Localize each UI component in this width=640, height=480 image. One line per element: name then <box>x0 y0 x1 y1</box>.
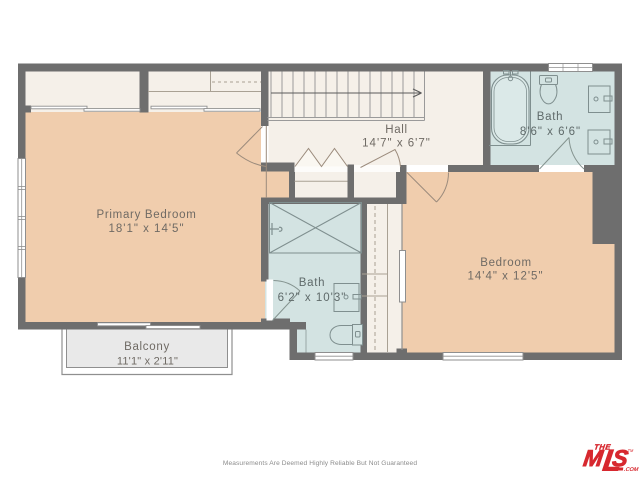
svg-text:Balcony: Balcony <box>124 341 170 353</box>
svg-text:8'6" x 6'6": 8'6" x 6'6" <box>520 126 581 138</box>
svg-text:18'1" x 14'5": 18'1" x 14'5" <box>108 223 184 235</box>
svg-text:TM: TM <box>627 448 633 453</box>
svg-text:Hall: Hall <box>385 124 408 136</box>
svg-text:6'2" x 10'3": 6'2" x 10'3" <box>278 292 347 304</box>
svg-text:14'7" x 6'7": 14'7" x 6'7" <box>362 138 431 150</box>
svg-text:Bath: Bath <box>299 277 325 289</box>
svg-text:Bedroom: Bedroom <box>480 257 532 269</box>
svg-text:14'4" x 12'5": 14'4" x 12'5" <box>467 271 543 283</box>
svg-text:Primary Bedroom: Primary Bedroom <box>97 209 197 221</box>
svg-text:11'1" x 2'11": 11'1" x 2'11" <box>117 356 178 368</box>
svg-text:.COM: .COM <box>624 467 640 473</box>
svg-text:Measurements Are Deemed Highly: Measurements Are Deemed Highly Reliable … <box>223 460 417 467</box>
svg-text:Bath: Bath <box>537 111 563 123</box>
